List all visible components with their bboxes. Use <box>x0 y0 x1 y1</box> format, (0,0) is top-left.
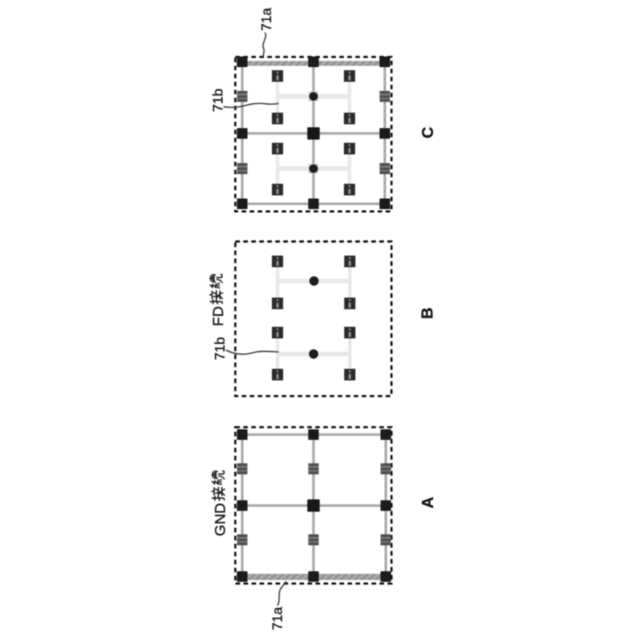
svg-text:B: B <box>420 307 437 319</box>
svg-text:FD: FD <box>210 306 227 326</box>
svg-text:GND: GND <box>212 503 229 537</box>
svg-text:A: A <box>420 496 437 508</box>
svg-text:C: C <box>420 126 437 138</box>
svg-text:71b: 71b <box>209 88 225 112</box>
svg-text:71a: 71a <box>269 607 285 631</box>
svg-text:71b: 71b <box>211 337 227 361</box>
svg-text:71a: 71a <box>258 8 274 32</box>
